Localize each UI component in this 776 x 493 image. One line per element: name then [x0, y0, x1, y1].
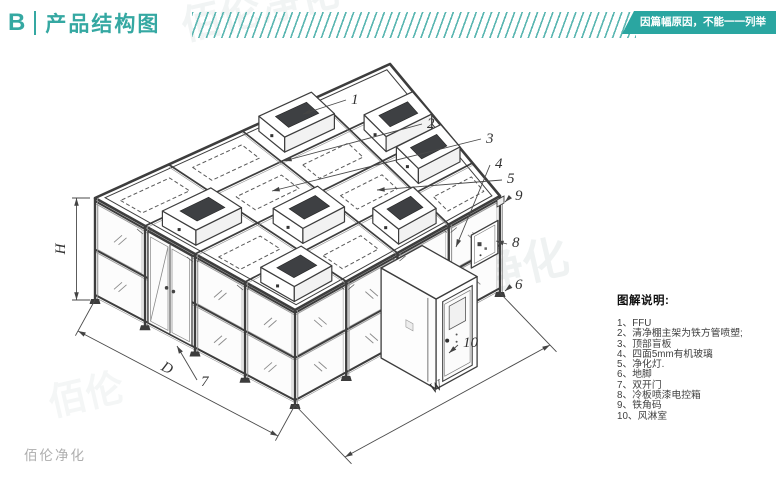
page: B 产品结构图 因篇幅原因，不能一一列举 佰伦净化佰伦净化佰伦HDW123456…	[0, 0, 776, 493]
section-letter: B	[8, 9, 25, 37]
header: B 产品结构图 因篇幅原因，不能一一列举	[0, 0, 776, 46]
legend-panel: 图解说明: 1、FFU2、清净棚主架为铁方管喷塑;3、顶部盲板4、四面5mm有机…	[617, 292, 743, 422]
legend-item: 10、风淋室	[617, 412, 743, 422]
callout-label-6: 6	[515, 277, 523, 293]
callout-label-1: 1	[351, 92, 359, 108]
dimension-label: H	[53, 242, 69, 255]
watermark: 佰伦	[45, 367, 129, 425]
header-badge: 因篇幅原因，不能一一列举	[622, 11, 776, 34]
legend-title: 图解说明:	[617, 292, 743, 308]
callout-label-2: 2	[427, 116, 435, 132]
header-stripes-decoration	[192, 12, 636, 38]
callout-label-5: 5	[507, 171, 515, 187]
legend-items: 1、FFU2、清净棚主架为铁方管喷塑;3、顶部盲板4、四面5mm有机玻璃5、净化…	[617, 319, 743, 422]
title-divider	[34, 11, 36, 35]
callout-label-3: 3	[485, 131, 494, 147]
page-title-group: B 产品结构图	[8, 7, 160, 39]
page-title: 产品结构图	[45, 8, 160, 38]
dimension-label: D	[157, 358, 175, 378]
callout-label-10: 10	[463, 335, 479, 351]
callout-label-4: 4	[495, 156, 503, 172]
brand-watermark: 佰伦净化	[24, 444, 86, 464]
callout-label-7: 7	[201, 374, 210, 390]
callout-label-8: 8	[512, 235, 520, 251]
callout-label-9: 9	[515, 188, 523, 204]
